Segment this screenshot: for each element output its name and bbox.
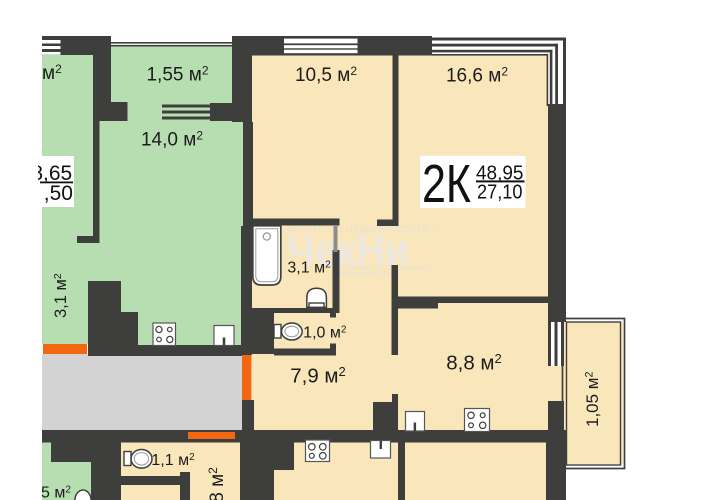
- svg-text:1,1 м2: 1,1 м2: [151, 452, 195, 469]
- svg-text:НОВЫЙ МЕТРАЖ: НОВЫЙ МЕТРАЖ: [339, 269, 396, 278]
- svg-text:14,0 м2: 14,0 м2: [141, 129, 203, 151]
- svg-text:27,10: 27,10: [477, 180, 523, 203]
- svg-text:,50: ,50: [44, 182, 73, 205]
- svg-text:1,55 м2: 1,55 м2: [146, 64, 208, 86]
- svg-text:3,1 м2: 3,1 м2: [287, 260, 331, 277]
- svg-text:2К: 2К: [422, 154, 471, 214]
- svg-text:10,5 м2: 10,5 м2: [295, 64, 357, 86]
- svg-text:7,9 м2: 7,9 м2: [290, 364, 346, 388]
- svg-text:3,1 м2: 3,1 м2: [52, 273, 70, 318]
- svg-text:1,05 м2: 1,05 м2: [583, 371, 602, 427]
- svg-text:1,0 м2: 1,0 м2: [303, 325, 347, 342]
- svg-text:8,8 м2: 8,8 м2: [446, 351, 502, 375]
- svg-text:16,6 м2: 16,6 м2: [446, 65, 508, 87]
